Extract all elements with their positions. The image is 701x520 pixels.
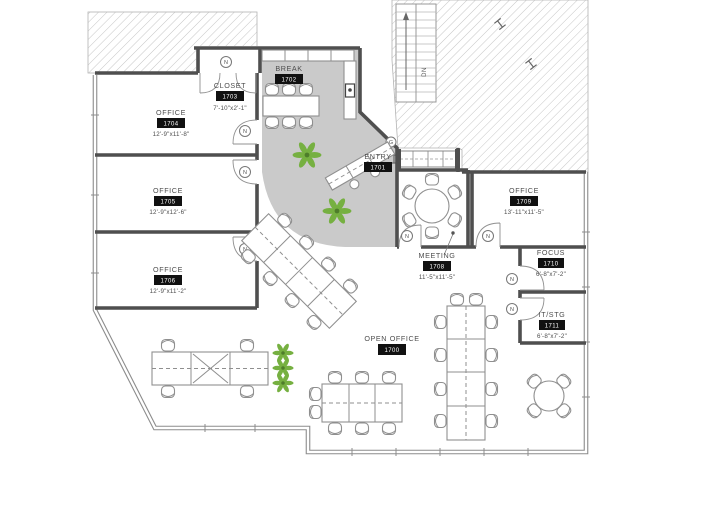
meeting-table	[401, 174, 463, 239]
floor-plan-svg: DN N N N N N N N N G	[0, 0, 701, 520]
plant-icon	[272, 358, 293, 378]
stair-direction-label: DN	[422, 67, 428, 77]
bench-cluster-center	[310, 372, 403, 435]
door-tag: N	[240, 126, 251, 137]
bench-cluster-left	[152, 340, 268, 398]
svg-text:OFFICE: OFFICE	[509, 186, 539, 195]
svg-text:OPEN OFFICE: OPEN OFFICE	[364, 334, 419, 343]
svg-text:1710: 1710	[544, 262, 559, 268]
room-label-entry: ENTRY 1701	[364, 152, 392, 172]
plant-icon	[272, 343, 293, 363]
svg-text:1706: 1706	[161, 279, 176, 285]
svg-text:N: N	[243, 129, 247, 135]
room-label-open-office: OPEN OFFICE 1700	[364, 334, 419, 355]
svg-text:12'-9"x11'-2": 12'-9"x11'-2"	[150, 288, 187, 295]
door-tag: N	[483, 231, 494, 242]
door-tag: N	[240, 167, 251, 178]
stair-icon: DN	[396, 4, 436, 102]
svg-text:12'-9"x12'-6": 12'-9"x12'-6"	[149, 209, 186, 216]
door-tag: N	[507, 274, 518, 285]
svg-text:1708: 1708	[430, 265, 445, 271]
svg-text:N: N	[510, 277, 514, 283]
room-label-it-stg: IT/STG 1711 6'-8"x7'-2"	[537, 310, 567, 340]
bench-cluster-right	[435, 294, 498, 441]
svg-text:1703: 1703	[223, 95, 238, 101]
room-label-office-c: OFFICE 1706 12'-9"x11'-2"	[150, 265, 187, 295]
svg-text:N: N	[405, 234, 409, 240]
svg-text:7'-10"x2'-1": 7'-10"x2'-1"	[213, 105, 247, 112]
room-label-office-d: OFFICE 1709 13'-11"x11'-5"	[504, 186, 544, 216]
svg-text:6'-8"x7'-2": 6'-8"x7'-2"	[536, 271, 566, 278]
svg-text:N: N	[510, 307, 514, 313]
room-label-office-a: OFFICE 1704 12'-9"x11'-8"	[153, 108, 190, 138]
door-tag: N	[221, 57, 232, 68]
svg-text:1705: 1705	[161, 200, 176, 206]
svg-text:MEETING: MEETING	[419, 251, 456, 260]
svg-text:1711: 1711	[545, 324, 560, 330]
svg-text:1701: 1701	[371, 166, 386, 172]
svg-text:CLOSET: CLOSET	[214, 81, 246, 90]
svg-text:1700: 1700	[385, 348, 400, 354]
plant-icon	[272, 373, 293, 393]
svg-text:N: N	[486, 234, 490, 240]
entry-storefront	[396, 149, 460, 169]
svg-text:11'-5"x11'-5": 11'-5"x11'-5"	[419, 274, 455, 281]
room-label-closet: CLOSET 1703 7'-10"x2'-1"	[213, 81, 247, 112]
room-label-focus: FOCUS 1710 6'-8"x7'-2"	[536, 248, 566, 278]
svg-text:13'-11"x11'-5": 13'-11"x11'-5"	[504, 209, 544, 216]
room-label-office-b: OFFICE 1705 12'-9"x12'-6"	[149, 186, 186, 216]
break-table	[263, 84, 319, 129]
svg-text:12'-9"x11'-8": 12'-9"x11'-8"	[153, 131, 190, 138]
svg-text:OFFICE: OFFICE	[153, 265, 183, 274]
svg-text:6'-8"x7'-2": 6'-8"x7'-2"	[537, 333, 567, 340]
svg-text:OFFICE: OFFICE	[153, 186, 183, 195]
svg-text:FOCUS: FOCUS	[537, 248, 565, 257]
svg-text:N: N	[224, 60, 228, 66]
svg-text:ENTRY: ENTRY	[364, 152, 391, 161]
svg-text:1702: 1702	[282, 78, 297, 84]
door-tag: N	[507, 304, 518, 315]
svg-text:1709: 1709	[517, 200, 532, 206]
svg-text:OFFICE: OFFICE	[156, 108, 186, 117]
floor-plan-page: DN N N N N N N N N G	[0, 0, 701, 520]
door-tag: N	[402, 231, 413, 242]
svg-text:N: N	[243, 170, 247, 176]
svg-text:IT/STG: IT/STG	[539, 310, 566, 319]
svg-text:BREAK: BREAK	[275, 64, 302, 73]
room-label-break: BREAK 1702	[275, 64, 303, 84]
round-table-open-office	[526, 373, 573, 420]
svg-text:1704: 1704	[164, 122, 179, 128]
room-label-meeting: MEETING 1708 11'-5"x11'-5"	[419, 231, 456, 281]
